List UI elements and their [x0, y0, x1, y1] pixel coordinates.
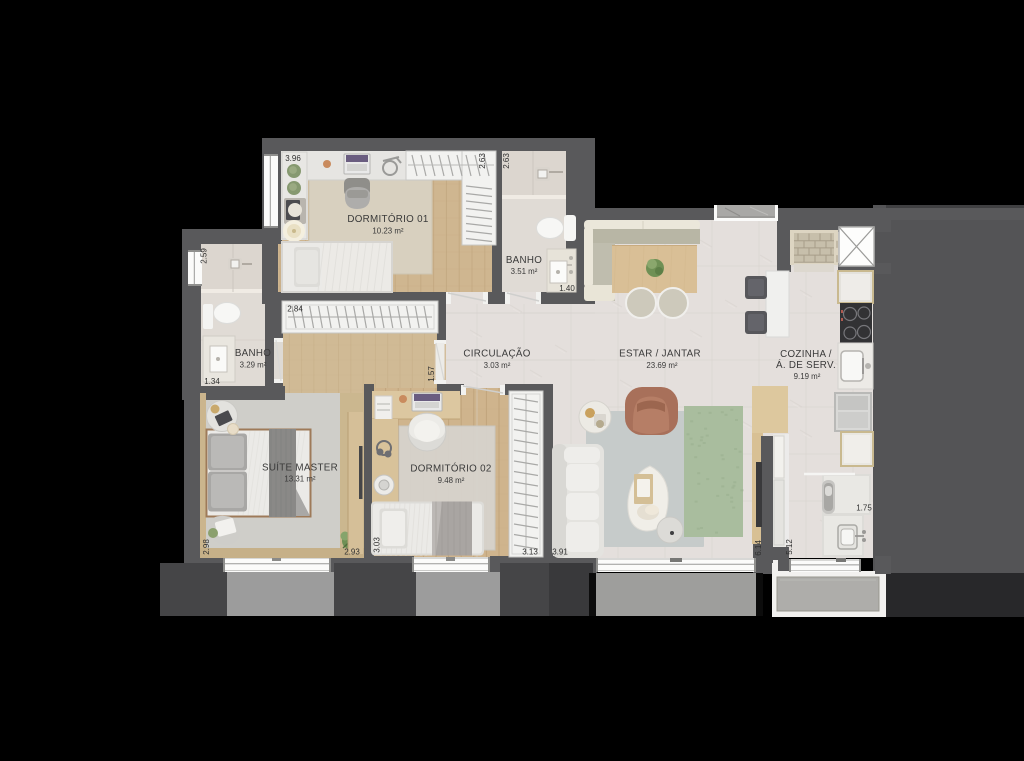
svg-text:2.59: 2.59	[200, 248, 209, 264]
svg-text:1.75: 1.75	[856, 504, 872, 513]
svg-text:9.19 m²: 9.19 m²	[794, 372, 821, 381]
svg-text:ESTAR / JANTAR: ESTAR / JANTAR	[619, 349, 701, 360]
svg-text:1.34: 1.34	[204, 377, 220, 386]
svg-text:DORMITÓRIO 02: DORMITÓRIO 02	[410, 464, 491, 475]
svg-text:DORMITÓRIO 01: DORMITÓRIO 01	[347, 214, 428, 225]
svg-text:BANHO: BANHO	[506, 255, 542, 266]
svg-text:1.57: 1.57	[427, 366, 436, 382]
svg-text:23.69 m²: 23.69 m²	[646, 361, 678, 370]
svg-text:2.63: 2.63	[478, 153, 487, 169]
svg-text:2.98: 2.98	[202, 539, 211, 555]
svg-text:2.84: 2.84	[287, 305, 303, 314]
svg-text:3.96: 3.96	[285, 154, 301, 163]
svg-text:5.12: 5.12	[785, 539, 794, 555]
svg-text:9.48 m²: 9.48 m²	[438, 476, 465, 485]
svg-text:3.03: 3.03	[373, 537, 382, 553]
svg-text:3.51 m²: 3.51 m²	[511, 267, 538, 276]
svg-text:2.63: 2.63	[502, 153, 511, 169]
svg-text:6.14: 6.14	[754, 540, 763, 556]
svg-text:BANHO: BANHO	[235, 348, 271, 359]
svg-text:1.40: 1.40	[559, 284, 575, 293]
svg-text:CIRCULAÇÃO: CIRCULAÇÃO	[463, 349, 530, 360]
svg-text:3.03 m²: 3.03 m²	[484, 361, 511, 370]
svg-text:2.93: 2.93	[344, 548, 360, 557]
svg-text:3.29 m²: 3.29 m²	[240, 361, 267, 370]
svg-text:COZINHA /: COZINHA /	[780, 349, 832, 360]
svg-text:Á. DE SERV.: Á. DE SERV.	[776, 360, 836, 371]
svg-text:SUÍTE MASTER: SUÍTE MASTER	[262, 463, 338, 474]
svg-text:3.91: 3.91	[552, 548, 568, 557]
svg-text:13.31 m²: 13.31 m²	[284, 475, 316, 484]
svg-text:10.23 m²: 10.23 m²	[372, 227, 404, 236]
svg-text:3.13: 3.13	[522, 548, 538, 557]
